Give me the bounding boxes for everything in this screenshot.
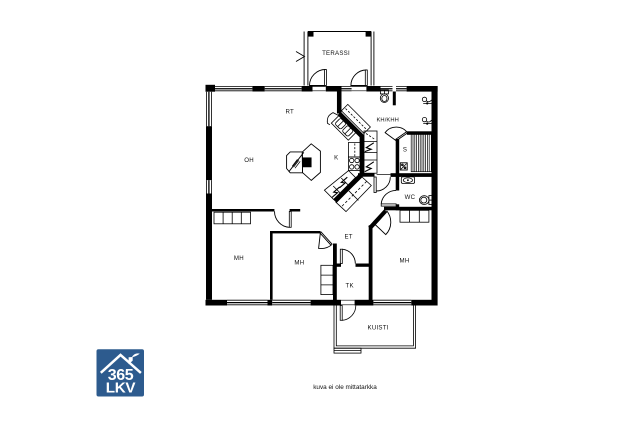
svg-text:kuva ei ole mittatarkka: kuva ei ole mittatarkka — [313, 384, 377, 391]
svg-text:KUISTI: KUISTI — [368, 324, 389, 331]
svg-text:ET: ET — [344, 234, 352, 241]
svg-text:K: K — [334, 155, 338, 162]
svg-text:OH: OH — [244, 157, 254, 164]
svg-text:S: S — [403, 147, 407, 154]
svg-text:MH: MH — [234, 255, 244, 262]
svg-text:LKV: LKV — [106, 380, 137, 397]
svg-text:WC: WC — [405, 194, 416, 201]
svg-text:KH/KHH: KH/KHH — [376, 117, 399, 123]
svg-text:TERASSI: TERASSI — [322, 50, 350, 57]
svg-text:MH: MH — [294, 260, 304, 267]
svg-text:TK: TK — [346, 282, 354, 289]
svg-text:MH: MH — [400, 257, 410, 264]
svg-text:RT: RT — [285, 109, 294, 116]
